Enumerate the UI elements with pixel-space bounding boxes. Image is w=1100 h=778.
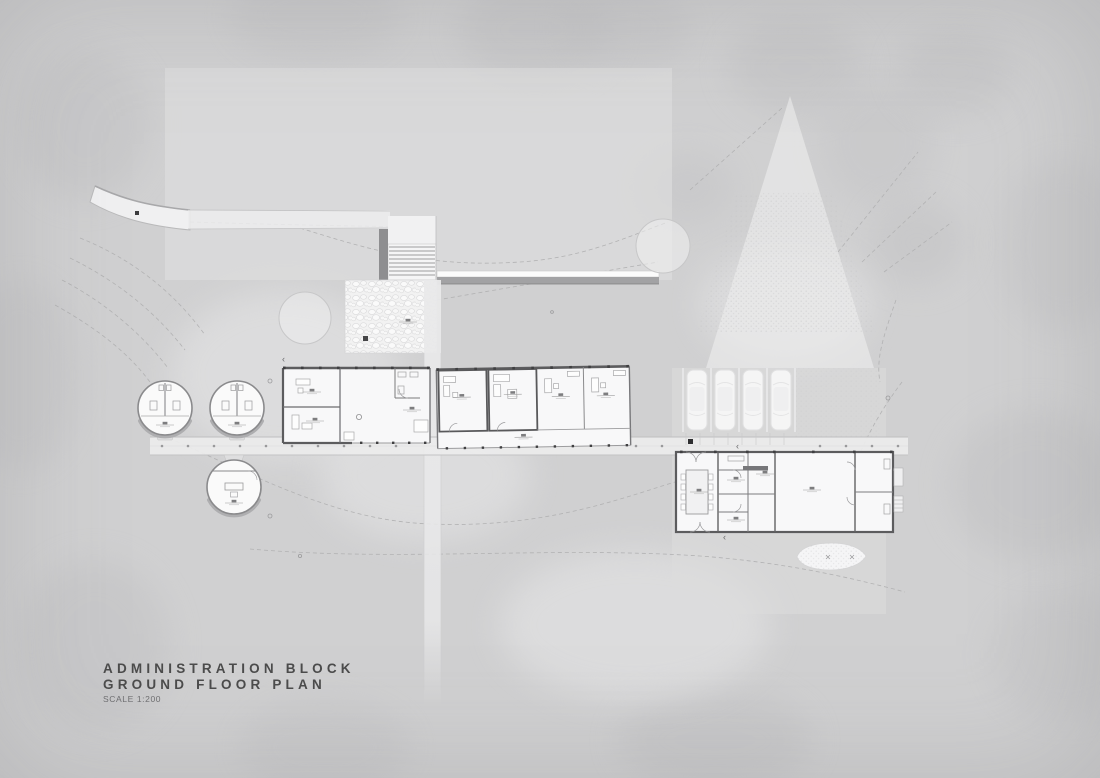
building-middle-wing [436,365,630,450]
stippled-ground [697,192,876,332]
direction-arrow: ‹ [282,354,285,364]
office-pod [207,455,261,515]
drawing-title-line1: ADMINISTRATION BLOCK [103,661,355,677]
title-block: ADMINISTRATION BLOCK GROUND FLOOR PLAN S… [103,661,355,704]
stair-wall [379,229,388,280]
car-icon [743,370,763,430]
counter [743,466,768,471]
entry-marker [688,439,693,444]
road-marker [135,211,139,215]
drawing-sheet: ‹ ‹ ‹ ADMINISTRATION BLOCK GROUND FLOOR … [0,0,1100,778]
building-services [676,439,903,532]
toilet-pod-2 [210,381,264,440]
direction-arrow: ‹ [736,441,739,451]
drawing-title-line2: GROUND FLOOR PLAN [103,677,355,693]
courtyard-marker [363,336,368,341]
pebble-courtyard [345,280,437,353]
side-steps [894,468,903,512]
parking-bays [683,368,795,432]
car-icon [771,370,791,430]
vertical-path [424,280,441,705]
car-icon [715,370,735,430]
building-west-wing [283,367,430,444]
retaining-wall [437,271,659,284]
direction-arrow: ‹ [723,532,726,542]
car-icon [687,370,707,430]
drawing-scale: SCALE 1:200 [103,694,355,704]
toilet-pod-1 [138,381,192,440]
